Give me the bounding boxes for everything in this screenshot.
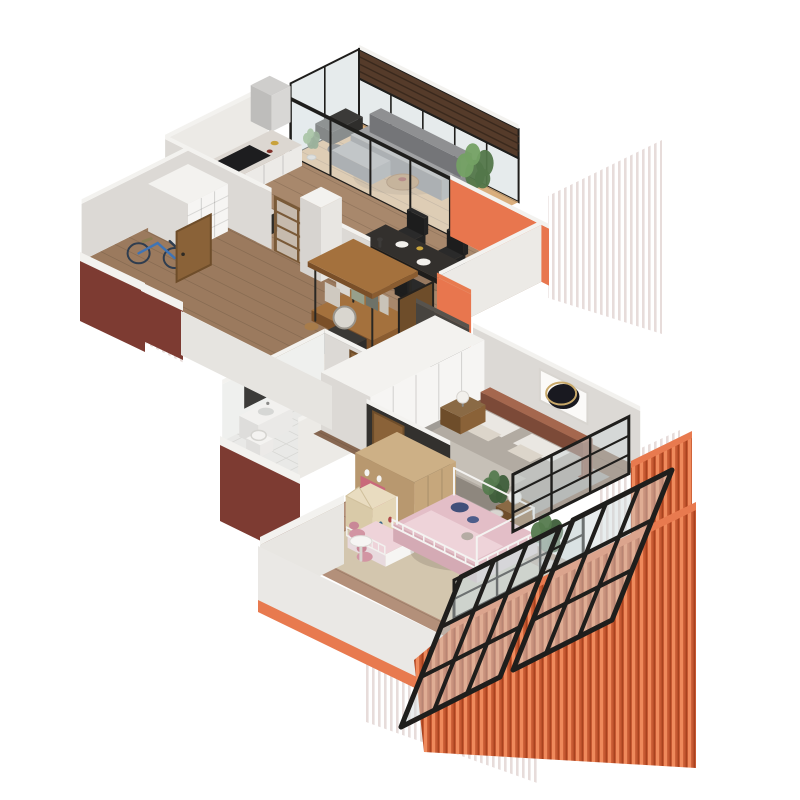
- floorplan-svg: [0, 0, 800, 800]
- counter-jar: [271, 141, 279, 145]
- dining-plate-1: [395, 241, 408, 247]
- wardrobe-knob-1: [364, 469, 369, 476]
- entry-round-mirror: [334, 307, 356, 329]
- storage-door-handle: [181, 252, 185, 256]
- kids-navy-pillow: [451, 502, 469, 512]
- sink-faucet: [266, 402, 269, 405]
- wardrobe-knob-2: [377, 475, 382, 482]
- sink-basin: [258, 408, 274, 416]
- lamp-west-globe: [457, 391, 469, 403]
- dining-bowl: [416, 246, 423, 250]
- toilet-seat: [251, 430, 266, 440]
- dining-plate-2: [417, 259, 431, 266]
- kids-chair-1-back: [349, 522, 359, 530]
- dining-vase: [377, 237, 383, 241]
- kids-table: [350, 536, 372, 547]
- kids-chair-2: [357, 552, 373, 562]
- range-hood: [251, 76, 291, 132]
- hall-stool: [305, 322, 319, 330]
- kids-teddy: [461, 532, 473, 540]
- kids-star-pillow: [467, 516, 479, 523]
- apartment-3d-floorplan: [0, 0, 800, 800]
- counter-bottle: [267, 149, 273, 153]
